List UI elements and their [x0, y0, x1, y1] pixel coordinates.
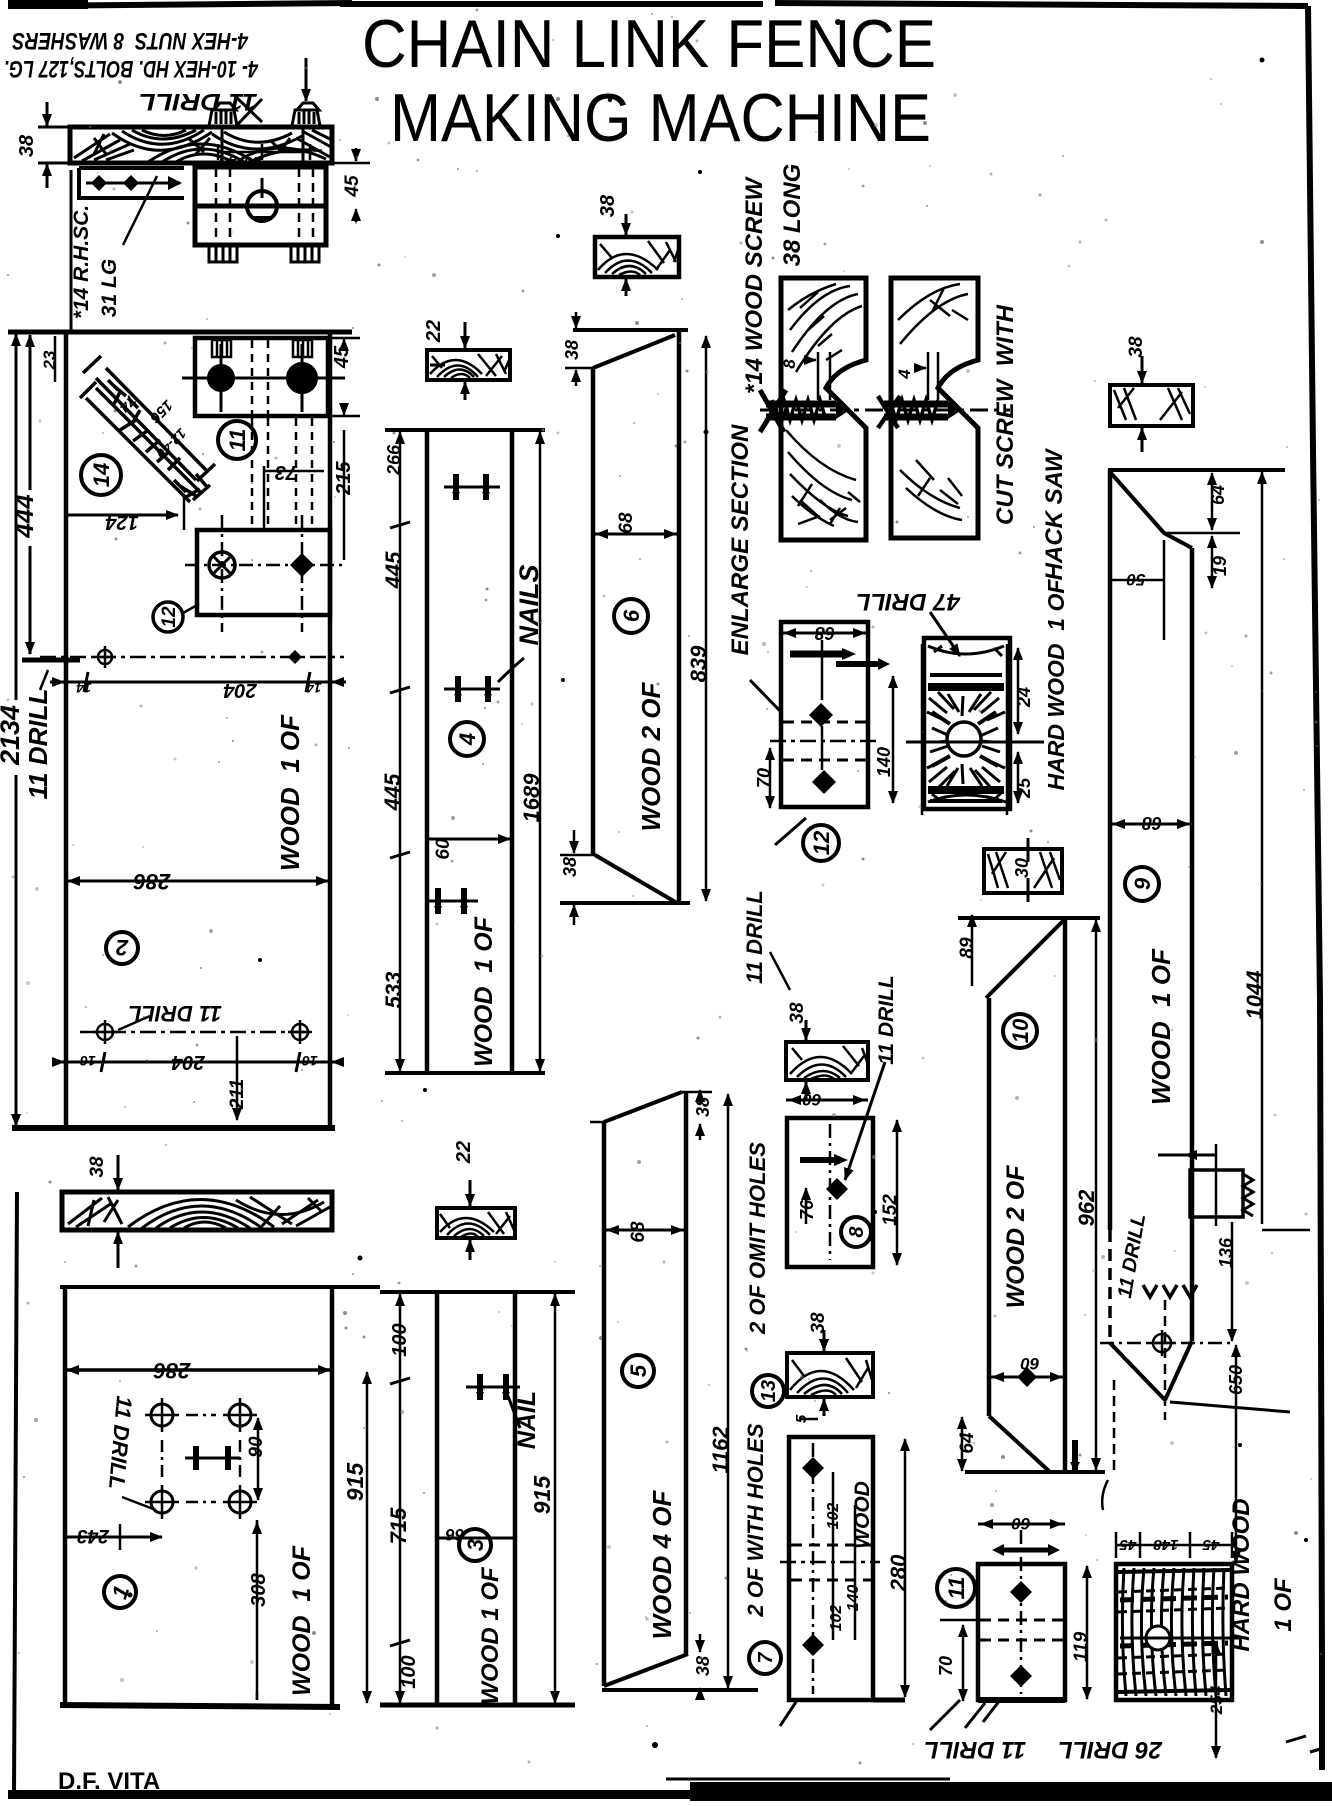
svg-text:25: 25: [1014, 777, 1034, 799]
svg-text:11 DRILL: 11 DRILL: [924, 1736, 1026, 1763]
svg-text:9: 9: [1130, 877, 1155, 890]
svg-text:*14 WOOD SCREW: *14 WOOD SCREW: [741, 176, 768, 394]
svg-text:26 DRILL: 26 DRILL: [1058, 1736, 1163, 1763]
svg-text:90: 90: [246, 1436, 267, 1458]
svg-text:60: 60: [433, 838, 454, 860]
svg-text:38: 38: [693, 1656, 713, 1676]
svg-text:NAIL: NAIL: [513, 1391, 541, 1449]
svg-text:60: 60: [802, 1090, 821, 1109]
svg-text:HACK SAW: HACK SAW: [1041, 447, 1068, 580]
svg-text:140: 140: [845, 1585, 862, 1612]
svg-text:243: 243: [77, 1525, 110, 1546]
svg-text:60: 60: [1020, 1354, 1039, 1373]
svg-text:2134: 2134: [0, 705, 25, 766]
svg-text:4: 4: [895, 369, 914, 380]
svg-text:4-HEX NUTS 8 WASHERS: 4-HEX NUTS 8 WASHERS: [12, 27, 249, 54]
svg-text:286: 286: [133, 869, 171, 894]
svg-text:4- 10-HEX HD. BOLTS,127 LG.: 4- 10-HEX HD. BOLTS,127 LG.: [4, 55, 259, 82]
svg-text:152: 152: [880, 1194, 901, 1226]
svg-text:12: 12: [809, 830, 834, 855]
svg-text:68: 68: [815, 623, 835, 643]
svg-text:3: 3: [463, 1539, 488, 1551]
svg-text:WOOD 2 OF: WOOD 2 OF: [636, 681, 666, 831]
svg-text:66: 66: [445, 1525, 464, 1544]
svg-text:2 OF OMIT HOLES: 2 OF OMIT HOLES: [745, 1142, 770, 1335]
svg-text:38: 38: [597, 194, 619, 217]
svg-text:4: 4: [455, 733, 480, 746]
svg-text:119: 119: [1071, 1631, 1092, 1662]
svg-text:715: 715: [386, 1507, 411, 1544]
svg-text:24: 24: [1014, 687, 1034, 708]
svg-text:HARD WOOD: HARD WOOD: [1228, 1498, 1255, 1651]
svg-text:14: 14: [89, 463, 114, 487]
svg-text:7: 7: [755, 1652, 777, 1664]
svg-text:204: 204: [223, 679, 257, 701]
svg-text:45: 45: [331, 345, 353, 369]
svg-text:ENLARGE SECTION: ENLARGE SECTION: [727, 424, 754, 655]
svg-text:136: 136: [1216, 1237, 1236, 1268]
svg-text:WOOD: WOOD: [851, 1481, 874, 1549]
svg-text:839: 839: [686, 645, 711, 682]
svg-text:140: 140: [874, 747, 894, 777]
svg-text:68: 68: [628, 1221, 649, 1243]
svg-text:45: 45: [1119, 1536, 1137, 1553]
svg-text:16: 16: [302, 1053, 318, 1069]
svg-text:915: 915: [529, 1475, 555, 1515]
svg-text:45: 45: [1202, 1536, 1220, 1553]
svg-text:308: 308: [248, 1572, 270, 1606]
svg-text:38: 38: [693, 1097, 713, 1117]
svg-text:11: 11: [944, 1577, 969, 1600]
svg-text:38: 38: [808, 1312, 829, 1334]
svg-text:WOOD 1 OF: WOOD 1 OF: [477, 1566, 504, 1705]
svg-text:64: 64: [1208, 485, 1228, 505]
svg-text:38: 38: [1126, 336, 1147, 358]
svg-text:204: 204: [171, 1051, 205, 1073]
svg-text:444: 444: [9, 494, 39, 539]
svg-text:22: 22: [453, 1141, 475, 1164]
svg-text:14: 14: [306, 680, 322, 696]
svg-text:124: 124: [105, 511, 138, 533]
svg-text:254: 254: [1207, 1685, 1226, 1715]
svg-text:102: 102: [828, 1605, 845, 1632]
svg-text:11: 11: [225, 429, 250, 452]
svg-text:22: 22: [423, 320, 445, 343]
svg-text:915: 915: [342, 1462, 368, 1502]
svg-text:211: 211: [227, 1079, 248, 1110]
svg-text:68: 68: [616, 512, 637, 534]
svg-text:5: 5: [626, 1364, 651, 1377]
svg-text:11 DRILL: 11 DRILL: [23, 689, 53, 800]
svg-text:962: 962: [1074, 1189, 1099, 1226]
svg-text:100: 100: [398, 1655, 420, 1688]
svg-text:23: 23: [40, 350, 59, 370]
svg-text:445: 445: [381, 551, 406, 589]
svg-text:215: 215: [333, 460, 355, 495]
svg-text:70: 70: [754, 768, 774, 788]
svg-text:89: 89: [957, 937, 978, 959]
svg-text:38: 38: [87, 1156, 108, 1178]
svg-text:1689: 1689: [519, 773, 544, 823]
svg-text:NAILS: NAILS: [514, 565, 544, 646]
svg-text:WOOD 1 OF: WOOD 1 OF: [470, 916, 498, 1067]
svg-text:49 45: 49 45: [218, 153, 261, 170]
svg-text:50: 50: [1126, 570, 1145, 589]
svg-text:16: 16: [80, 1053, 96, 1069]
svg-text:280: 280: [886, 1554, 911, 1592]
svg-text:38: 38: [560, 857, 580, 877]
svg-text:WOOD 2 OF: WOOD 2 OF: [1002, 1165, 1030, 1309]
svg-text:6: 6: [619, 609, 644, 622]
svg-text:1 OF: 1 OF: [1270, 1577, 1297, 1632]
svg-text:286: 286: [153, 1358, 191, 1383]
svg-text:76: 76: [797, 1199, 817, 1220]
svg-text:70: 70: [936, 1656, 956, 1676]
svg-text:266: 266: [384, 444, 404, 476]
svg-text:68: 68: [1142, 813, 1162, 833]
svg-text:100: 100: [389, 1323, 411, 1356]
svg-text:11 DRILL: 11 DRILL: [742, 890, 767, 984]
svg-text:12: 12: [159, 606, 180, 628]
svg-text:45: 45: [342, 175, 363, 198]
svg-text:445: 445: [380, 773, 405, 811]
svg-text:5: 5: [793, 1414, 810, 1423]
svg-text:38: 38: [787, 1002, 808, 1024]
svg-text:533: 533: [381, 972, 406, 1009]
svg-text:1162: 1162: [708, 1426, 733, 1474]
svg-text:1044: 1044: [1242, 971, 1267, 1020]
svg-text:148: 148: [1153, 1536, 1179, 1553]
svg-text:10: 10: [1008, 1018, 1033, 1043]
svg-text:CUT SCREW WITH: CUT SCREW WITH: [992, 304, 1019, 525]
svg-text:CHAIN LINK FENCE: CHAIN LINK FENCE: [362, 6, 936, 82]
svg-text:WOOD 1 OF: WOOD 1 OF: [1146, 948, 1176, 1105]
svg-text:WOOD 4 OF: WOOD 4 OF: [647, 1489, 677, 1639]
svg-text:WOOD 1 OF: WOOD 1 OF: [275, 714, 305, 871]
svg-text:38: 38: [562, 340, 582, 360]
svg-text:WOOD 1 OF: WOOD 1 OF: [288, 1545, 316, 1696]
svg-text:650: 650: [1226, 1365, 1246, 1395]
svg-text:8: 8: [846, 1226, 868, 1238]
svg-text:D.F. VITA: D.F. VITA: [58, 1768, 160, 1795]
svg-text:*14 R.H.SC.: *14 R.H.SC.: [70, 205, 93, 319]
svg-text:11 DRILL: 11 DRILL: [128, 1001, 222, 1026]
svg-text:14: 14: [76, 680, 92, 696]
svg-text:38 LONG: 38 LONG: [779, 164, 806, 267]
svg-text:38: 38: [16, 134, 38, 157]
svg-text:47 DRILL: 47 DRILL: [856, 588, 961, 615]
svg-text:MAKING MACHINE: MAKING MACHINE: [390, 80, 931, 156]
svg-text:73: 73: [275, 461, 297, 483]
svg-text:60: 60: [1011, 1514, 1030, 1533]
svg-text:31 LG: 31 LG: [98, 259, 121, 317]
svg-text:2: 2: [115, 935, 129, 960]
svg-text:11 DRILL: 11 DRILL: [875, 975, 898, 1064]
svg-text:13: 13: [758, 1380, 780, 1402]
svg-text:102: 102: [825, 1503, 842, 1530]
svg-text:HARD WOOD 1 OF: HARD WOOD 1 OF: [1043, 579, 1069, 791]
svg-text:8: 8: [780, 359, 799, 369]
svg-text:2 OF WITH HOLES: 2 OF WITH HOLES: [743, 1423, 768, 1617]
svg-text:19: 19: [1210, 556, 1230, 576]
svg-text:30: 30: [1012, 858, 1032, 878]
